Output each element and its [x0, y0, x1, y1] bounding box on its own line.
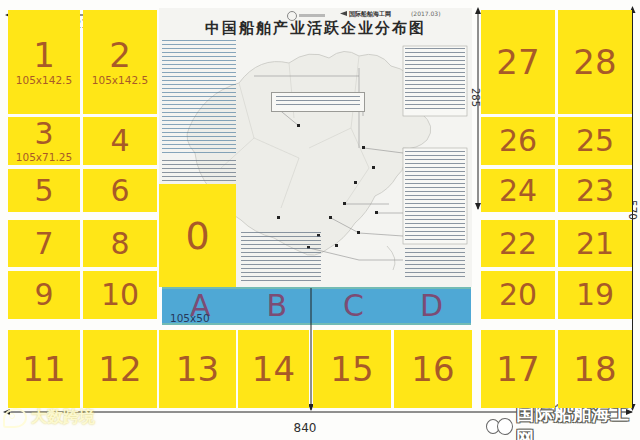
- layout-diagram: 国际船舶海工网 (2017.03) 中国船舶产业活跃企业分布图 0 A B C …: [0, 0, 640, 440]
- panel-size-label: 105x142.5: [16, 75, 72, 86]
- panel-number: 1: [33, 38, 55, 72]
- panel-cell-21: 21: [558, 220, 632, 267]
- panel-number: 4: [110, 126, 129, 156]
- panel-number: 14: [252, 352, 295, 386]
- panel-cell-22: 22: [481, 220, 555, 267]
- map-date: (2017.03): [411, 10, 441, 17]
- panel-number: 3: [34, 119, 53, 149]
- panel-number: 9: [34, 280, 53, 310]
- map-title: 中国船舶产业活跃企业分布图: [159, 19, 472, 38]
- strip-letter-c: C: [343, 291, 364, 321]
- panel-cell-7: 7: [8, 220, 80, 267]
- panel-cell-12: 12: [83, 330, 157, 408]
- panel-number: 5: [34, 176, 53, 206]
- panel-number: 6: [110, 176, 129, 206]
- panel-number: 7: [34, 229, 53, 259]
- panel-cell-28: 28: [558, 10, 632, 114]
- panel-cell-24: 24: [481, 169, 555, 212]
- dimension-285: 285: [470, 85, 481, 111]
- panel-cell-17: 17: [481, 330, 555, 408]
- panel-number: 8: [110, 229, 129, 259]
- panel-number: 22: [499, 229, 537, 259]
- panel-cell-19: 19: [558, 271, 632, 319]
- publisher-flag-icon: [340, 11, 347, 16]
- panel-cell-0: 0: [159, 184, 236, 287]
- panel-size-label: 105x71.25: [16, 152, 72, 163]
- panel-cell-13: 13: [159, 330, 236, 408]
- panel-number: 13: [176, 352, 219, 386]
- company-list-left: [162, 40, 236, 155]
- panel-cell-27: 27: [481, 10, 555, 114]
- company-list-right-2: [405, 151, 465, 241]
- panel-number: 21: [576, 229, 614, 259]
- panel-number: 17: [496, 352, 539, 386]
- panel-number: 23: [576, 176, 614, 206]
- map-publisher: 国际船舶海工网: [349, 10, 391, 19]
- panel-cell-10: 10: [83, 271, 157, 319]
- watermark-left-logo-icon: [3, 408, 27, 428]
- panel-cell-8: 8: [83, 220, 157, 267]
- strip-letter-d: D: [420, 291, 443, 321]
- panel-cell-6: 6: [83, 169, 157, 212]
- map-header: 国际船舶海工网 (2017.03): [159, 9, 472, 19]
- strip-size-label: 105x50: [170, 312, 210, 324]
- panel-number: 25: [576, 126, 614, 156]
- panel-size-label: 105x142.5: [92, 75, 148, 86]
- panel-cell-5: 5: [8, 169, 80, 212]
- company-list-bottom: [241, 232, 321, 284]
- panel-cell-25: 25: [558, 117, 632, 165]
- panel-number: 15: [330, 352, 373, 386]
- panel-cell-14: 14: [238, 330, 309, 408]
- strip-letter-b: B: [266, 291, 287, 321]
- watermark-left-text: 大数跨境: [31, 407, 95, 428]
- watermark-bottom-left: 大数跨境: [3, 407, 95, 428]
- panel-number: 11: [22, 352, 65, 386]
- company-list-left-2: [162, 160, 236, 186]
- panel-cell-9: 9: [8, 271, 80, 319]
- panel-number: 16: [411, 352, 454, 386]
- company-list-right-1: [405, 48, 465, 112]
- panel-number: 2: [109, 38, 131, 72]
- panel-number: 28: [573, 45, 616, 79]
- callout-box: [271, 92, 365, 112]
- panel-cell-3: 3105x71.25: [8, 117, 80, 165]
- company-list-right-3: [405, 248, 465, 280]
- panel-number: 0: [185, 214, 209, 258]
- panel-cell-2: 2105x142.5: [83, 10, 157, 114]
- panel-cell-1: 1105x142.5: [8, 10, 80, 114]
- panel-number: 19: [576, 280, 614, 310]
- watermark-right-logo-icon: [497, 418, 513, 435]
- panel-number: 24: [499, 176, 537, 206]
- panel-number: 27: [496, 45, 539, 79]
- panel-cell-18: 18: [558, 330, 632, 408]
- panel-cell-4: 4: [83, 117, 157, 165]
- map-credit-bar: [299, 14, 325, 17]
- panel-number: 26: [499, 126, 537, 156]
- panel-cell-20: 20: [481, 271, 555, 319]
- panel-number: 10: [101, 280, 139, 310]
- panel-cell-15: 15: [313, 330, 391, 408]
- panel-cell-16: 16: [394, 330, 472, 408]
- panel-cell-23: 23: [558, 169, 632, 212]
- panel-number: 12: [98, 352, 141, 386]
- panel-number: 20: [499, 280, 537, 310]
- dimension-840: 840: [270, 421, 340, 435]
- panel-cell-11: 11: [8, 330, 80, 408]
- callout-text: [276, 96, 360, 108]
- panel-cell-26: 26: [481, 117, 555, 165]
- panel-number: 18: [573, 352, 616, 386]
